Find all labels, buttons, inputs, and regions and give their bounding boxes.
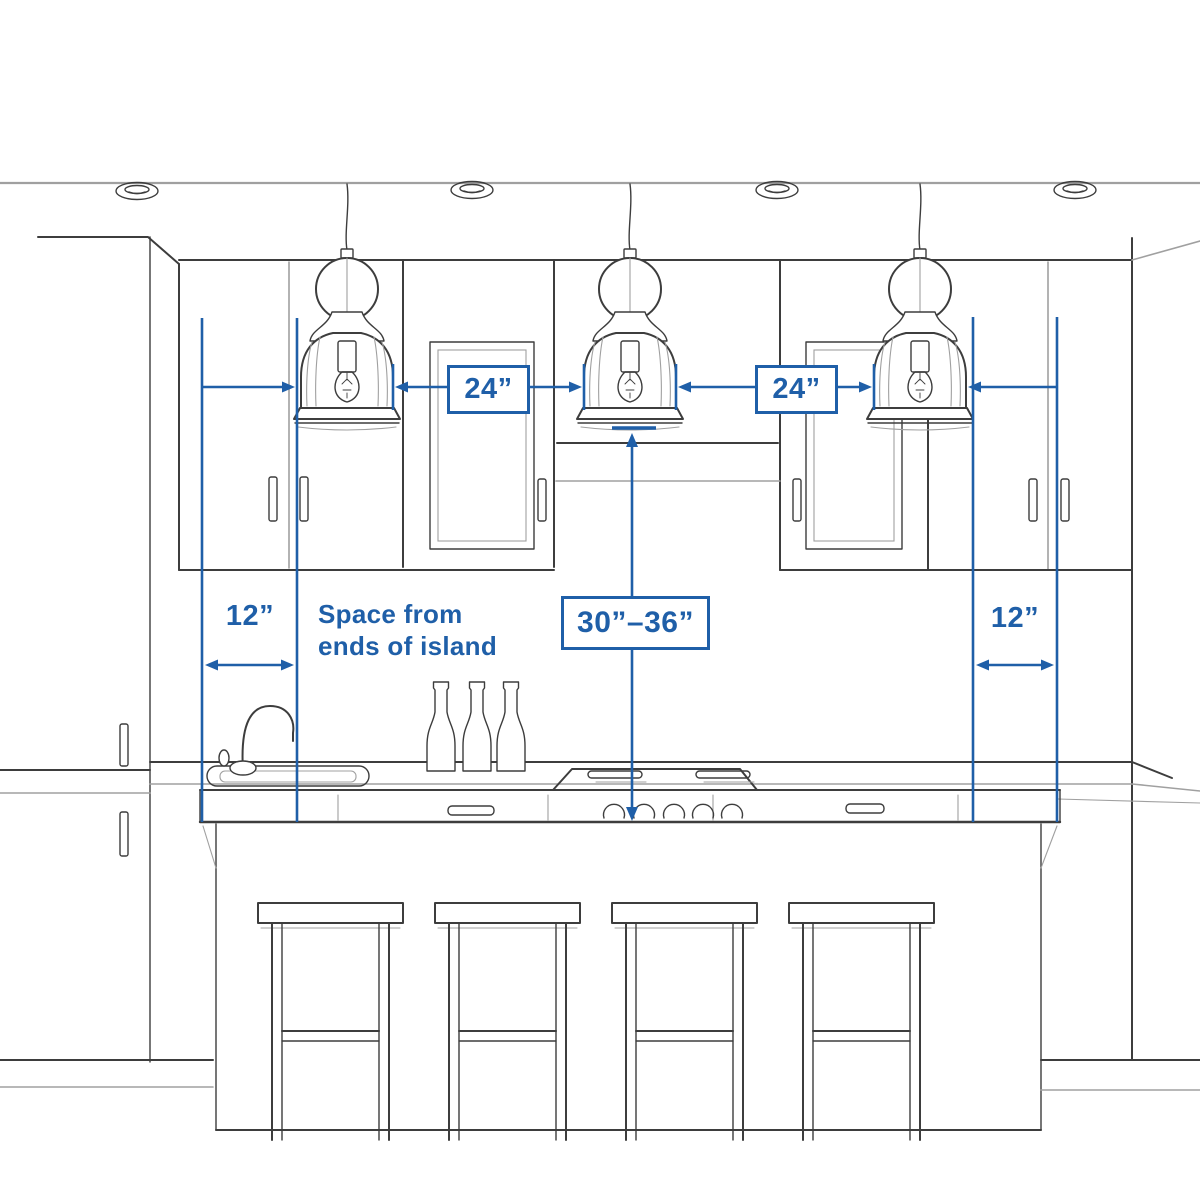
pendant-height-label: 30”–36” <box>561 596 710 650</box>
island <box>200 790 1060 1130</box>
pendant-light-3 <box>867 184 973 430</box>
faucet <box>219 706 293 775</box>
end-space-note-line1: Space from <box>318 598 497 630</box>
drawer-handle <box>448 806 494 815</box>
wine-bottles <box>427 682 525 771</box>
cabinet-handle <box>1029 479 1037 521</box>
end-space-note: Space from ends of island <box>318 598 497 662</box>
cabinet-handle <box>793 479 801 521</box>
island-end-space-left-label: 12” <box>202 600 298 633</box>
pendant-spacing-left-label: 24” <box>447 365 530 414</box>
end-space-note-line2: ends of island <box>318 630 497 662</box>
pendant-spacing-right-label: 24” <box>755 365 838 414</box>
recessed-light-2 <box>451 182 493 199</box>
cabinet-handle <box>269 477 277 521</box>
bar-stool-2 <box>435 903 580 1140</box>
cooktop-knobs <box>604 804 743 818</box>
bar-stool-3 <box>612 903 757 1140</box>
pendant-light-1 <box>294 184 400 430</box>
cabinet-handle <box>120 724 128 766</box>
bar-stool-4 <box>789 903 934 1140</box>
cabinet-handle <box>120 812 128 856</box>
right-floor <box>1041 1060 1200 1090</box>
island-end-space-right-label: 12” <box>972 602 1058 635</box>
cabinet-handle <box>1061 479 1069 521</box>
cooktop <box>553 769 757 818</box>
recessed-light-4 <box>1054 182 1096 199</box>
cabinet-handle <box>538 479 546 521</box>
bar-stool-1 <box>258 903 403 1140</box>
recessed-light-3 <box>756 182 798 199</box>
cabinet-handle <box>300 477 308 521</box>
left-wall-cabinets <box>0 237 213 1087</box>
pendant-light-2 <box>577 184 683 430</box>
kitchen-dimension-diagram: 24” 24” 30”–36” 12” 12” Space from ends … <box>0 0 1200 1200</box>
range-hood <box>556 443 780 481</box>
drawer-handle <box>846 804 884 813</box>
recessed-light-1 <box>116 183 158 200</box>
